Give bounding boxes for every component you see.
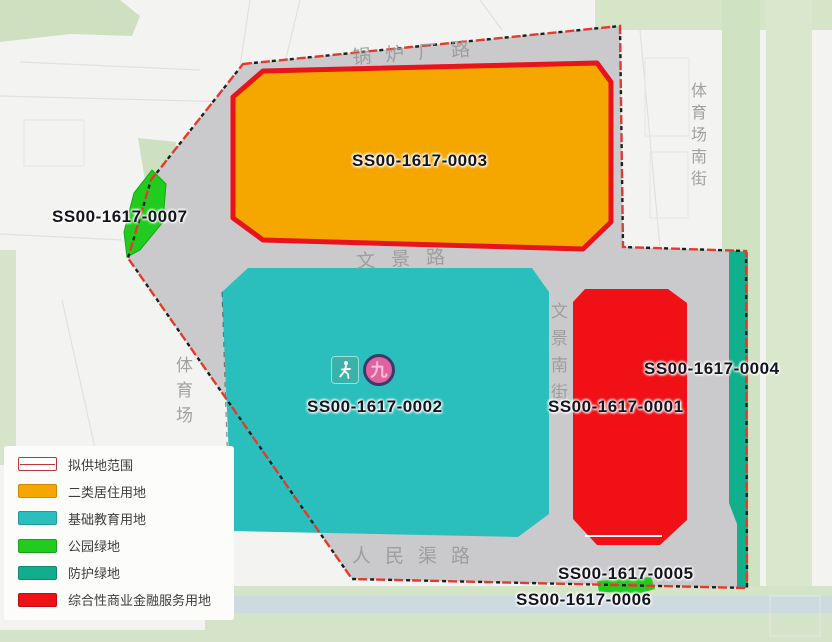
legend-item-protective-green: 防护绿地 — [18, 565, 226, 581]
basemap-green-band-right-2 — [766, 0, 812, 642]
legend-label: 基础教育用地 — [68, 509, 146, 528]
legend-label: 防护绿地 — [68, 563, 120, 582]
legend-label: 公园绿地 — [68, 536, 120, 555]
legend-item-park-green: 公园绿地 — [18, 538, 226, 554]
parcel-label-0005: SS00-1617-0005 — [558, 564, 694, 584]
road-label-stadium-south: 体育场南街 — [684, 82, 708, 192]
legend-swatch-boundary — [18, 457, 57, 471]
legend-item-boundary: 拟供地范围 — [18, 456, 226, 472]
parcel-commercial-0001 — [573, 289, 687, 545]
parcel-label-0002: SS00-1617-0002 — [307, 397, 443, 417]
road-label-wenjing-south: 文景南街 — [545, 302, 570, 410]
school-number-badge: 九 — [363, 354, 395, 386]
road-label-wenjing: 文景路 — [355, 241, 461, 273]
basemap-green-band-bottom-edge — [0, 630, 832, 642]
legend-swatch-park-green — [18, 539, 57, 553]
legend-item-commercial: 综合性商业金融服务用地 — [18, 592, 226, 608]
road-label-stadium: 体育场 — [170, 356, 195, 431]
basemap-green-strip-left — [0, 250, 16, 465]
road-label-renmin-canal: 人民渠路 — [352, 541, 484, 568]
legend-label: 拟供地范围 — [68, 455, 133, 474]
legend-item-residential: 二类居住用地 — [18, 483, 226, 499]
parcel-label-0001: SS00-1617-0001 — [548, 397, 684, 417]
legend-swatch-education — [18, 511, 57, 525]
poi-icon-group: 九 — [331, 354, 395, 386]
school-number-text: 九 — [371, 362, 388, 379]
parcel-label-0006: SS00-1617-0006 — [516, 590, 652, 610]
basemap-green-patch-topleft — [0, 0, 140, 42]
legend-label: 综合性商业金融服务用地 — [68, 590, 211, 609]
parcel-label-0003: SS00-1617-0003 — [352, 151, 488, 171]
walking-person-icon — [334, 359, 356, 381]
legend-swatch-residential — [18, 484, 57, 498]
legend: 拟供地范围 二类居住用地 基础教育用地 公园绿地 防护绿地 综合性商业金融服务用… — [4, 446, 234, 620]
planning-map: 锅炉厂路 文景路 人民渠路 文景南街 体育场 体育场南街 SS00-1617-0… — [0, 0, 832, 642]
legend-swatch-commercial — [18, 593, 57, 607]
parcel-label-0004: SS00-1617-0004 — [644, 359, 780, 379]
legend-label: 二类居住用地 — [68, 482, 146, 501]
legend-item-education: 基础教育用地 — [18, 510, 226, 526]
pedestrian-icon — [331, 356, 359, 384]
legend-swatch-protective-green — [18, 566, 57, 580]
parcel-label-0007: SS00-1617-0007 — [52, 207, 188, 227]
